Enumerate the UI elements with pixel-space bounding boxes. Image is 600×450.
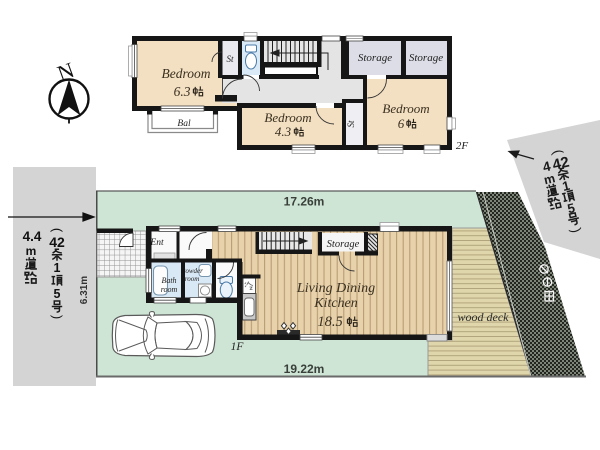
- svg-text:6.31m: 6.31m: [79, 276, 90, 304]
- svg-text:St: St: [346, 120, 356, 128]
- svg-text:Storage: Storage: [327, 239, 360, 250]
- svg-text:(: (: [50, 228, 65, 233]
- svg-text:Bal: Bal: [177, 119, 191, 129]
- svg-text:5: 5: [54, 287, 61, 301]
- svg-text:4.4: 4.4: [23, 229, 42, 244]
- svg-text:Storage: Storage: [358, 52, 392, 64]
- svg-text:wood deck: wood deck: [458, 310, 510, 324]
- svg-text:1: 1: [54, 261, 61, 275]
- svg-text:m: m: [26, 244, 37, 258]
- svg-text:Kitchen: Kitchen: [313, 296, 358, 311]
- svg-text:Ent: Ent: [149, 238, 164, 248]
- svg-text:18.5: 18.5: [317, 314, 342, 330]
- svg-text:room: room: [185, 275, 200, 283]
- svg-text:room: room: [161, 285, 178, 294]
- svg-text:Storage: Storage: [409, 52, 443, 64]
- svg-text:Bedroom: Bedroom: [264, 110, 311, 125]
- svg-text:6: 6: [398, 116, 405, 131]
- svg-text:Bath: Bath: [161, 276, 176, 285]
- svg-text:1F: 1F: [231, 341, 245, 353]
- svg-text:): ): [50, 315, 65, 319]
- svg-text:6.3: 6.3: [174, 84, 191, 99]
- svg-text:St: St: [226, 54, 234, 64]
- svg-text:42: 42: [49, 234, 65, 250]
- svg-text:4.3: 4.3: [275, 124, 292, 139]
- svg-text:Living Dining: Living Dining: [296, 281, 375, 296]
- svg-text:19.22m: 19.22m: [284, 362, 325, 376]
- svg-text:2F: 2F: [456, 140, 469, 152]
- svg-text:Bedroom: Bedroom: [382, 101, 429, 116]
- svg-text:17.26m: 17.26m: [284, 195, 325, 209]
- svg-text:Bedroom: Bedroom: [162, 66, 211, 81]
